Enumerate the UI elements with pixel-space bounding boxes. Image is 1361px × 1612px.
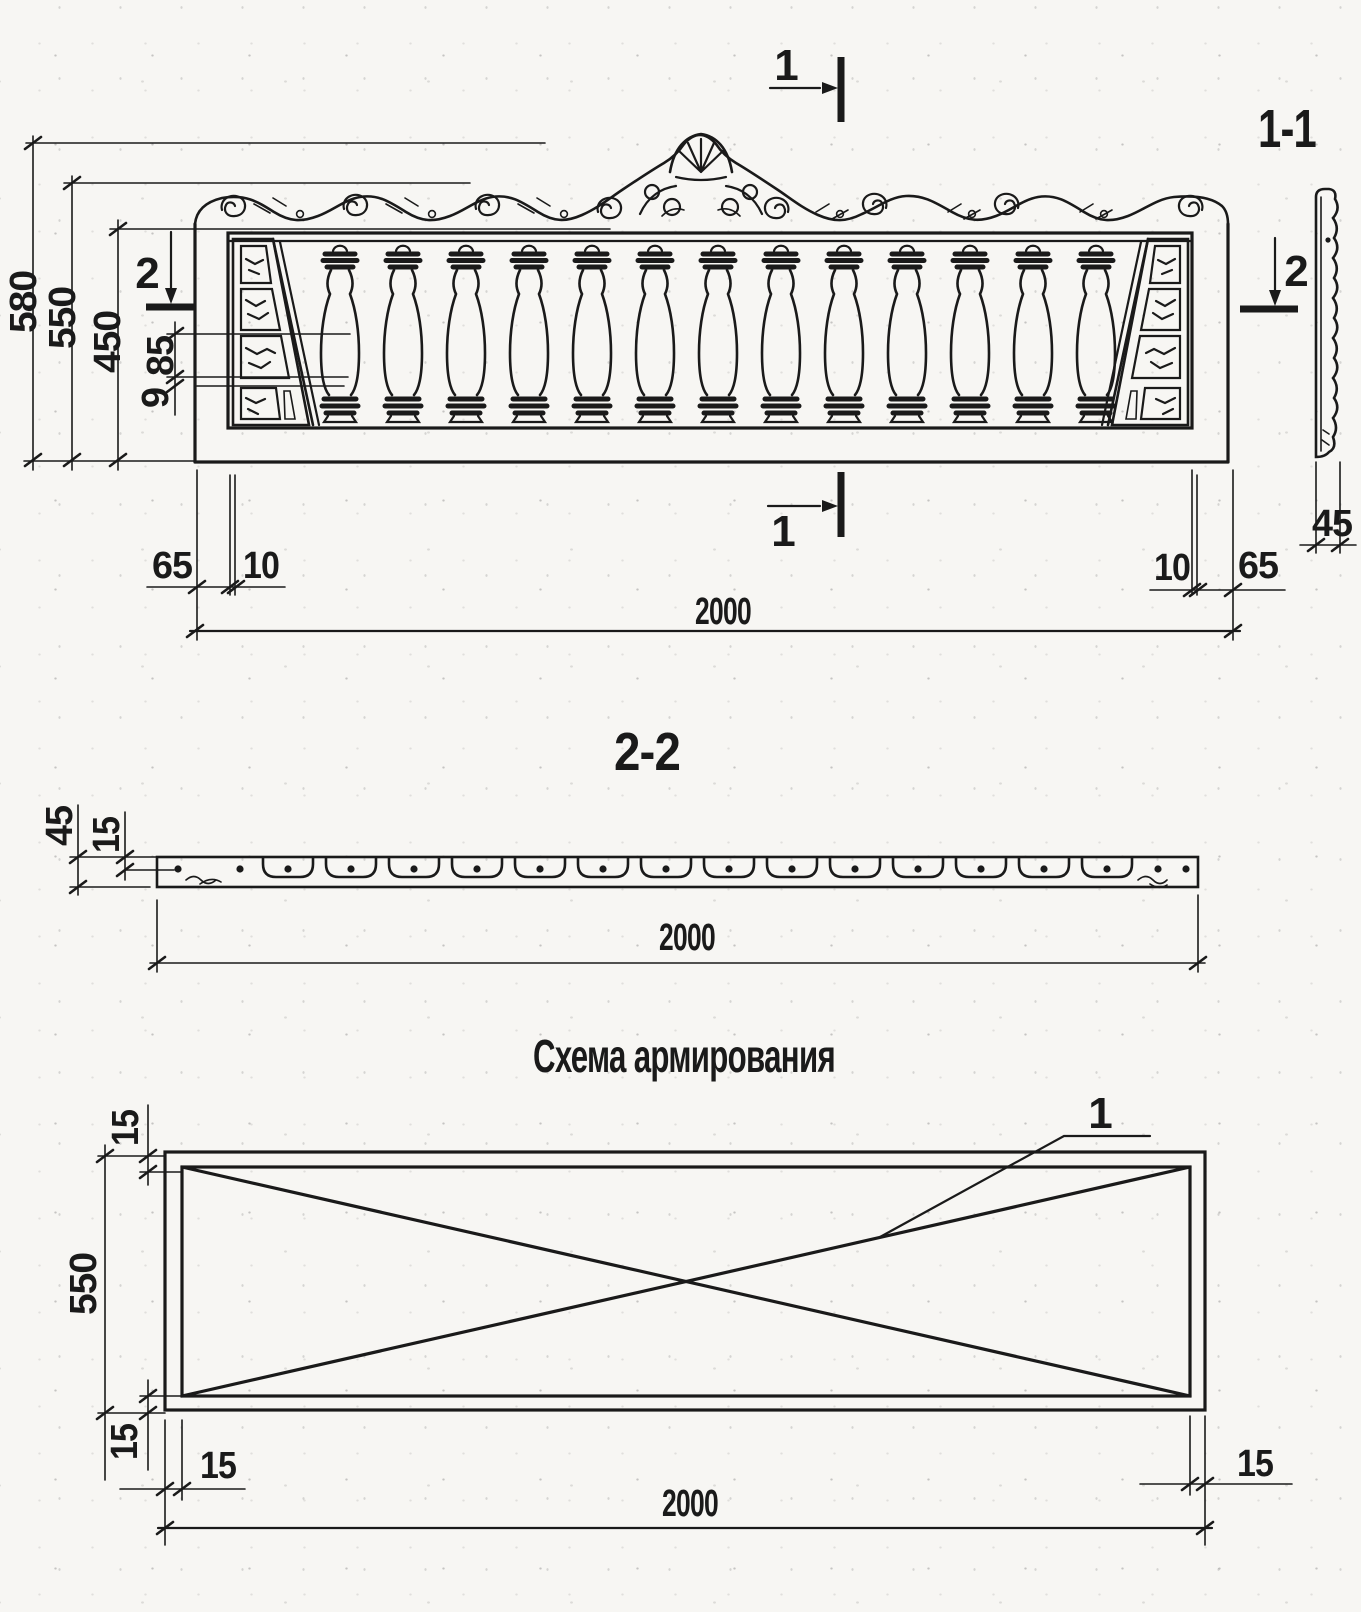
reinforcement-view: Схема армирования 1 550 15 15 15 15 — [63, 1030, 1292, 1545]
section-2-2-dims: 45 15 2000 — [39, 805, 1206, 972]
dim-total-height: 580 — [3, 271, 45, 333]
cut-label-1: 1 — [774, 41, 798, 90]
cut-label-1: 1 — [771, 507, 795, 556]
technical-drawing: 580 550 450 85 9 2 2 — [0, 0, 1361, 1612]
dim-length: 2000 — [695, 591, 751, 633]
section-1-1-dims: 45 — [1300, 462, 1356, 553]
dim-balustrade-height: 450 — [87, 311, 129, 373]
section-marker-2-left: 2 — [135, 232, 196, 307]
dim-bar-depth: 15 — [86, 816, 128, 853]
reinforcement-title: Схема армирования — [533, 1030, 835, 1082]
profile-outline — [1316, 189, 1338, 457]
dim-cover-left: 15 — [200, 1445, 237, 1487]
balusters — [321, 246, 1115, 422]
bar-leader: 1 — [880, 1089, 1150, 1237]
elevation-view: 580 550 450 85 9 2 2 — [3, 41, 1308, 640]
elevation-dims-bottom: 65 10 10 65 2000 — [147, 470, 1285, 640]
elevation-dims-left: 580 550 450 85 9 — [3, 136, 610, 470]
bar-mark-label: 1 — [1088, 1089, 1112, 1138]
section-2-2-view: 2-2 45 15 2000 — [39, 722, 1206, 972]
section-marker-1-top: 1 — [770, 41, 841, 122]
dim-thickness: 45 — [1312, 503, 1353, 545]
drawing-sheet: 580 550 450 85 9 2 2 — [0, 0, 1361, 1612]
dim-panel-height: 550 — [42, 287, 84, 349]
dim-height: 550 — [63, 1253, 105, 1315]
section-1-1-view: 1-1 45 — [1258, 99, 1356, 553]
dim-strip-length: 2000 — [659, 917, 715, 959]
dim-length: 2000 — [662, 1483, 718, 1525]
corner-panel-left — [233, 239, 319, 425]
cut-label-2: 2 — [1284, 247, 1307, 296]
dim-cover-bottom: 15 — [104, 1423, 146, 1460]
rebar-diagonals — [182, 1167, 1190, 1396]
dim-lip-left: 10 — [243, 545, 279, 587]
reinforcement-dims-bottom: 15 15 2000 — [120, 1416, 1292, 1545]
dim-cover-top: 15 — [105, 1109, 147, 1146]
dim-edge-left: 65 — [152, 545, 193, 587]
section-2-2-label: 2-2 — [614, 722, 680, 782]
baluster-sockets — [263, 858, 1132, 877]
dim-cover-right: 15 — [1237, 1443, 1274, 1485]
section-marker-1-bottom: 1 — [768, 472, 841, 556]
dim-edge-right: 65 — [1238, 545, 1279, 587]
shell-motif — [640, 134, 762, 216]
dim-strip-thickness: 45 — [39, 805, 81, 846]
section-marker-2-right: 2 — [1240, 238, 1308, 309]
dim-corner-rib: 9 — [135, 388, 177, 408]
crest-ornament — [195, 134, 1228, 224]
cut-label-2: 2 — [135, 249, 158, 298]
dim-corner-cell: 85 — [140, 335, 182, 376]
section-1-1-label: 1-1 — [1258, 99, 1316, 159]
dim-lip-right: 10 — [1154, 547, 1190, 589]
